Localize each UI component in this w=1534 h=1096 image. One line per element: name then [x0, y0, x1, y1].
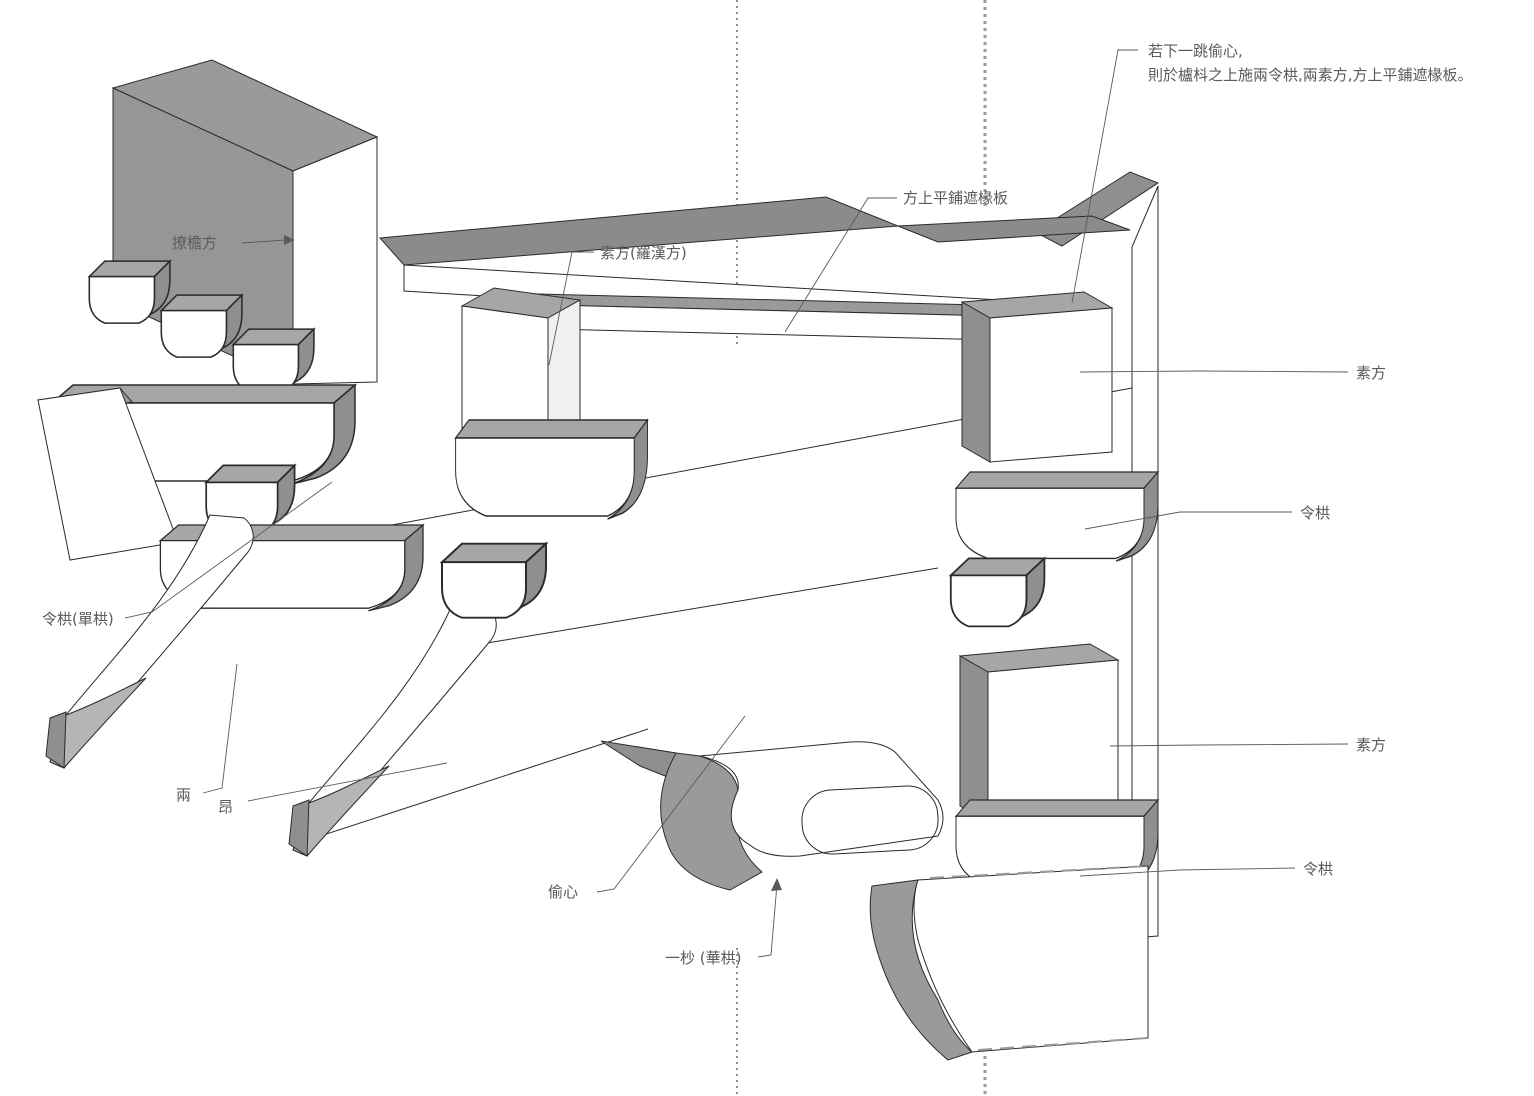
liaoyanfang-text: 撩檐方 [172, 234, 217, 252]
sufang-upper-text: 素方 [1356, 364, 1386, 382]
bottom-dou [870, 866, 1148, 1060]
liang-leader [203, 664, 237, 793]
liang-text: 兩 [176, 786, 191, 804]
mid-dou [442, 544, 546, 618]
diagram-svg: 若下一跳偷心, 則於櫨枓之上施兩令栱,兩素方,方上平鋪遮椽板。 方上平鋪遮椽板 … [0, 0, 1534, 1096]
blockA-flank [962, 302, 990, 462]
ang1-tip [46, 712, 66, 768]
sufang-luohanfang-text: 素方(羅漢方) [600, 244, 687, 262]
right-cluster [870, 292, 1158, 1060]
label-yimiao-huagong: 一杪 (華栱) [665, 878, 782, 967]
yimiao-text: 一杪 (華栱) [665, 949, 741, 967]
blockB-flank [960, 656, 988, 822]
mid-gong-arm [456, 420, 648, 519]
sufang-block-upper [962, 292, 1112, 462]
linggong-upper-text: 令栱 [1300, 504, 1330, 522]
touxin-text: 偷心 [548, 883, 578, 901]
cover-board-strip [898, 216, 1130, 242]
zhechuanban-text: 方上平鋪遮椽板 [903, 189, 1008, 207]
ang-text: 昂 [218, 798, 233, 816]
sufang-lower-text: 素方 [1356, 736, 1386, 754]
sufang-upper-leader [1080, 371, 1348, 372]
yimiao-arrowhead [771, 878, 782, 891]
linggong-upper-arm [956, 472, 1158, 561]
shaft-edge-2 [487, 568, 938, 643]
dougong-diagram: 若下一跳偷心, 則於櫨枓之上施兩令栱,兩素方,方上平鋪遮椽板。 方上平鋪遮椽板 … [0, 0, 1534, 1096]
note-line1: 若下一跳偷心, [1148, 42, 1243, 60]
note-line2: 則於櫨枓之上施兩令栱,兩素方,方上平鋪遮椽板。 [1148, 66, 1473, 84]
yimiao-leader [758, 884, 777, 957]
right-dou-1 [951, 558, 1045, 626]
huagong-arm [601, 741, 943, 890]
left-cluster [38, 60, 496, 856]
blockA-front [990, 308, 1112, 462]
label-sufang-upper: 素方 [1080, 364, 1386, 382]
middle-cluster [442, 288, 648, 618]
ang2-tip [289, 800, 309, 856]
linggong-dangong-text: 令栱(單栱) [42, 610, 114, 628]
ang-beam-2 [289, 603, 496, 856]
sufang-block-lower [960, 644, 1118, 822]
blockB-front [988, 660, 1118, 822]
linggong-lower-text: 令栱 [1303, 860, 1333, 878]
